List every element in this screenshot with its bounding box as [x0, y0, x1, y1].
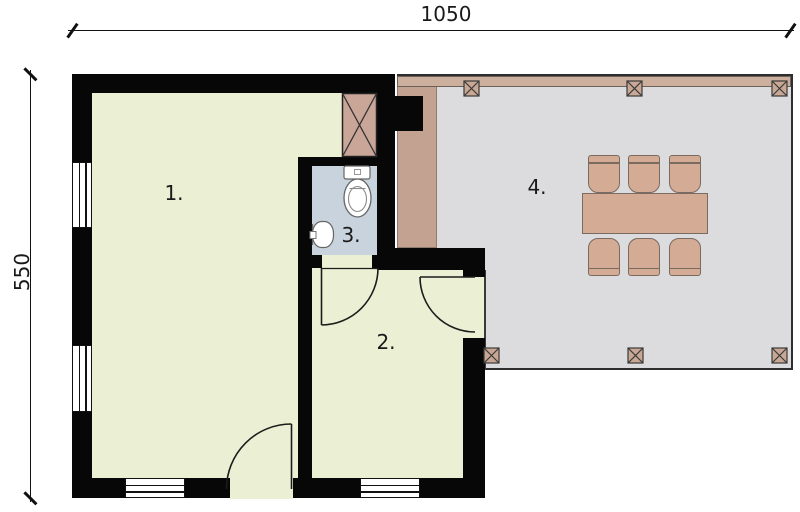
- chair: [669, 155, 701, 193]
- room-2-floor: [312, 268, 463, 478]
- room-4-label: 4.: [507, 175, 567, 199]
- window: [125, 478, 185, 498]
- wall-room2-right: [463, 270, 485, 277]
- window: [360, 478, 420, 498]
- wall-bottom: [420, 478, 485, 498]
- chair: [628, 155, 660, 193]
- room-3-label: 3.: [321, 223, 381, 247]
- wall-divider: [298, 157, 312, 478]
- dimension-width-label: 1050: [406, 4, 486, 24]
- front-door-opening: [230, 478, 293, 499]
- bathroom-door-opening: [322, 255, 372, 268]
- dimension-line-horizontal: [68, 30, 794, 32]
- room-1-label: 1.: [144, 181, 204, 205]
- chair: [669, 238, 701, 276]
- room-1-floor: [92, 93, 298, 478]
- dimension-height-label: 550: [12, 248, 32, 296]
- wall-bathroom-bottom: [298, 255, 322, 268]
- wall-bottom: [185, 478, 230, 498]
- floor-plan: 1. 2. 3. 4. 1050 550: [0, 0, 800, 512]
- window: [72, 162, 92, 228]
- pergola-beam: [397, 76, 791, 87]
- wall-pillar: [395, 96, 423, 131]
- wall-top: [72, 74, 395, 93]
- wall-left: [72, 74, 92, 498]
- wall-bottom: [72, 478, 125, 498]
- wall-room2-top: [377, 248, 485, 270]
- chair: [628, 238, 660, 276]
- chimney: [343, 94, 377, 157]
- wall-room2-right: [463, 338, 485, 498]
- chair: [588, 238, 620, 276]
- dining-table: [582, 193, 708, 234]
- terrace-door-opening: [463, 277, 484, 338]
- room-2-label: 2.: [356, 330, 416, 354]
- chair: [588, 155, 620, 193]
- wall-bottom: [293, 478, 360, 498]
- window: [72, 345, 92, 412]
- wall-bathroom-top: [312, 157, 377, 166]
